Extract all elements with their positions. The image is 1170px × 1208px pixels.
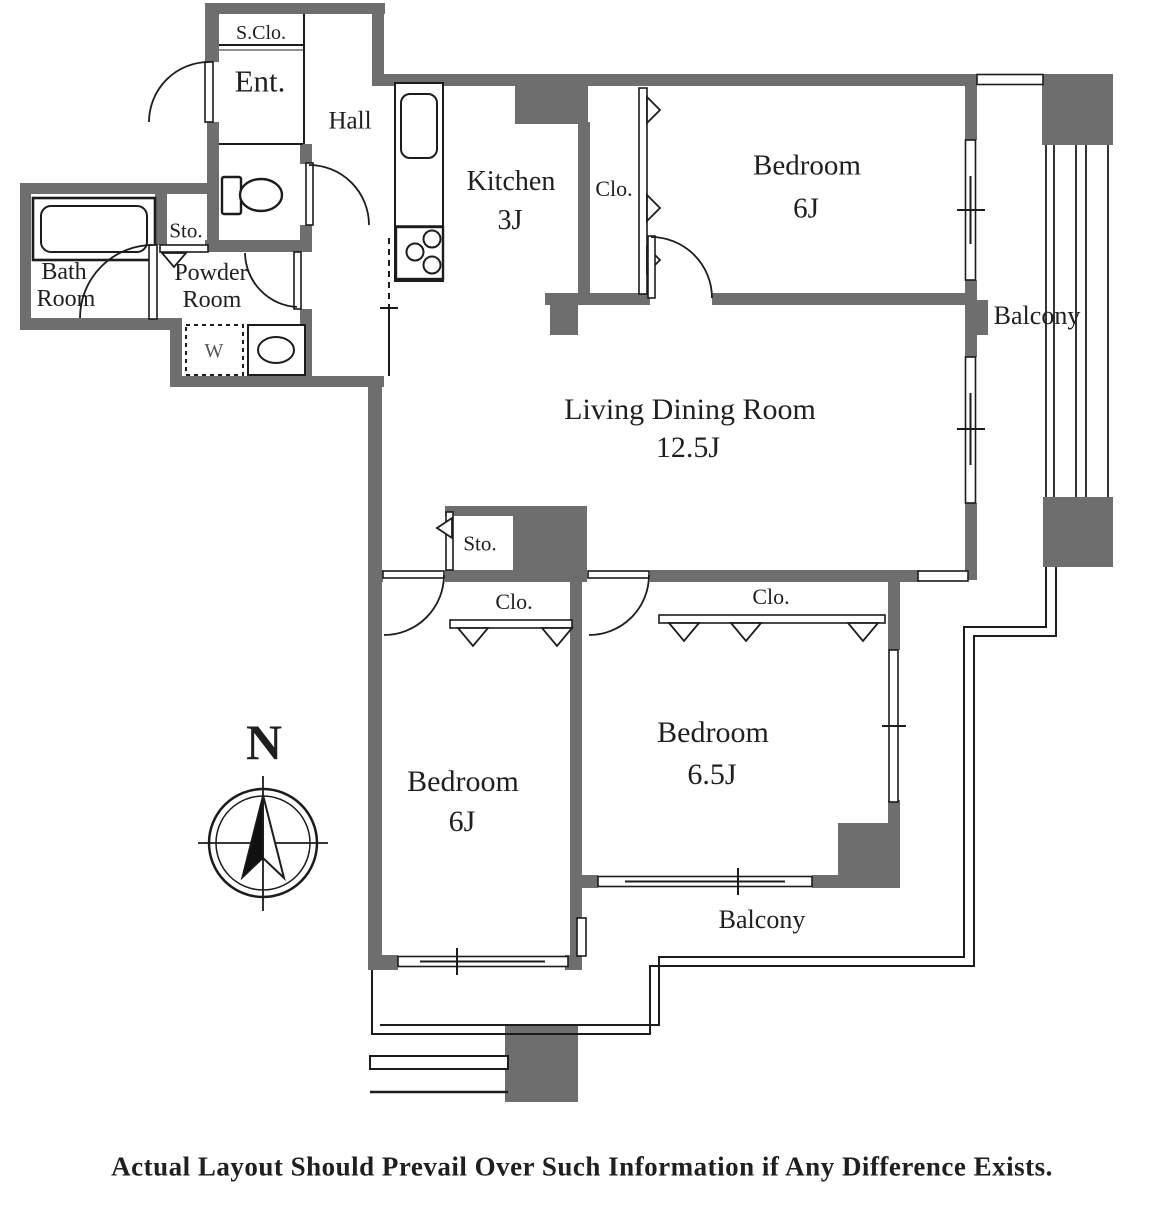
bedroom-top-door — [648, 236, 712, 298]
disclaimer-text: Actual Layout Should Prevail Over Such I… — [111, 1154, 1053, 1181]
bedroom-right-door — [588, 571, 649, 635]
entrance-door — [149, 62, 213, 122]
label-powder-2: Room — [183, 288, 242, 312]
label-living: Living Dining Room — [564, 395, 816, 425]
closet-right-rod — [659, 615, 885, 641]
label-bedroom-left-size: 6J — [449, 807, 476, 837]
bedroom-left-door — [383, 571, 444, 635]
window-bedroom-top — [957, 140, 985, 280]
powder-room-door — [245, 252, 301, 309]
label-hall: Hall — [328, 109, 371, 134]
label-shoe-closet: S.Clo. — [236, 23, 286, 43]
north-compass-icon — [198, 776, 328, 911]
label-bedroom-top-size: 6J — [793, 195, 819, 224]
window-bedroom-left-bottom — [398, 918, 586, 975]
floorplan-canvas: S.Clo. Ent. Hall Kitchen 3J Clo. Bedroom… — [0, 0, 1170, 1208]
label-balcony-bottom: Balcony — [719, 907, 806, 933]
label-powder-1: Powder — [174, 261, 247, 285]
label-entrance: Ent. — [235, 66, 286, 97]
storage-mid — [437, 512, 453, 570]
vanity-sink — [248, 325, 305, 375]
exterior-partition-lines — [370, 1056, 508, 1092]
label-closet-right: Clo. — [752, 586, 789, 608]
label-bedroom-top: Bedroom — [753, 152, 861, 181]
window-bedroom-right-side — [882, 650, 906, 802]
label-balcony-right: Balcony — [994, 303, 1081, 329]
label-bedroom-left: Bedroom — [407, 767, 519, 797]
kitchen-counter — [395, 83, 443, 281]
label-bedroom-right: Bedroom — [657, 718, 769, 748]
label-storage-upper: Sto. — [169, 221, 202, 242]
toilet-fixture — [222, 177, 282, 214]
floorplan-linework — [0, 0, 1170, 1208]
label-bath-2: Room — [37, 287, 96, 311]
window-living-bottom — [918, 571, 968, 581]
label-storage-mid: Sto. — [463, 534, 496, 555]
label-kitchen-size: 3J — [498, 207, 523, 235]
label-north: N — [246, 717, 282, 767]
bathtub — [33, 198, 155, 260]
balcony-top-strip — [977, 75, 1043, 85]
label-bedroom-right-size: 6.5J — [687, 760, 736, 790]
label-closet-left: Clo. — [495, 591, 532, 613]
closet-left-rod — [450, 620, 572, 646]
label-bath-1: Bath — [41, 260, 86, 284]
window-bedroom-right-bottom — [598, 868, 812, 895]
label-closet-upper: Clo. — [595, 178, 632, 200]
window-living — [957, 357, 985, 503]
label-living-size: 12.5J — [656, 433, 720, 463]
toilet-door — [306, 163, 369, 225]
label-washer: W — [205, 341, 224, 361]
label-kitchen: Kitchen — [467, 168, 556, 196]
